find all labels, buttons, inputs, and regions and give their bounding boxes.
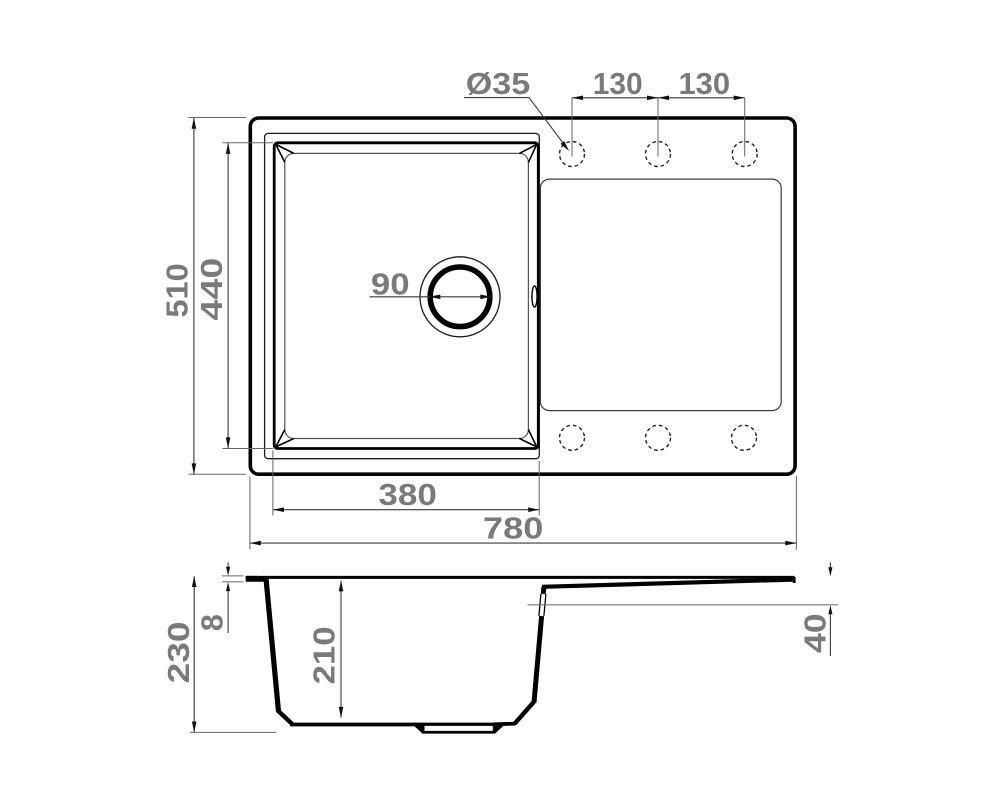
svg-text:210: 210 bbox=[306, 626, 341, 684]
svg-text:90: 90 bbox=[371, 266, 410, 301]
svg-text:8: 8 bbox=[195, 614, 230, 631]
svg-text:780: 780 bbox=[483, 511, 544, 546]
svg-text:230: 230 bbox=[161, 621, 196, 683]
svg-text:Ø35: Ø35 bbox=[466, 66, 531, 101]
svg-text:130: 130 bbox=[593, 66, 643, 101]
svg-text:130: 130 bbox=[678, 66, 730, 101]
svg-text:440: 440 bbox=[194, 258, 229, 321]
svg-text:380: 380 bbox=[378, 477, 437, 512]
svg-text:510: 510 bbox=[160, 263, 195, 317]
svg-text:40: 40 bbox=[797, 613, 832, 653]
